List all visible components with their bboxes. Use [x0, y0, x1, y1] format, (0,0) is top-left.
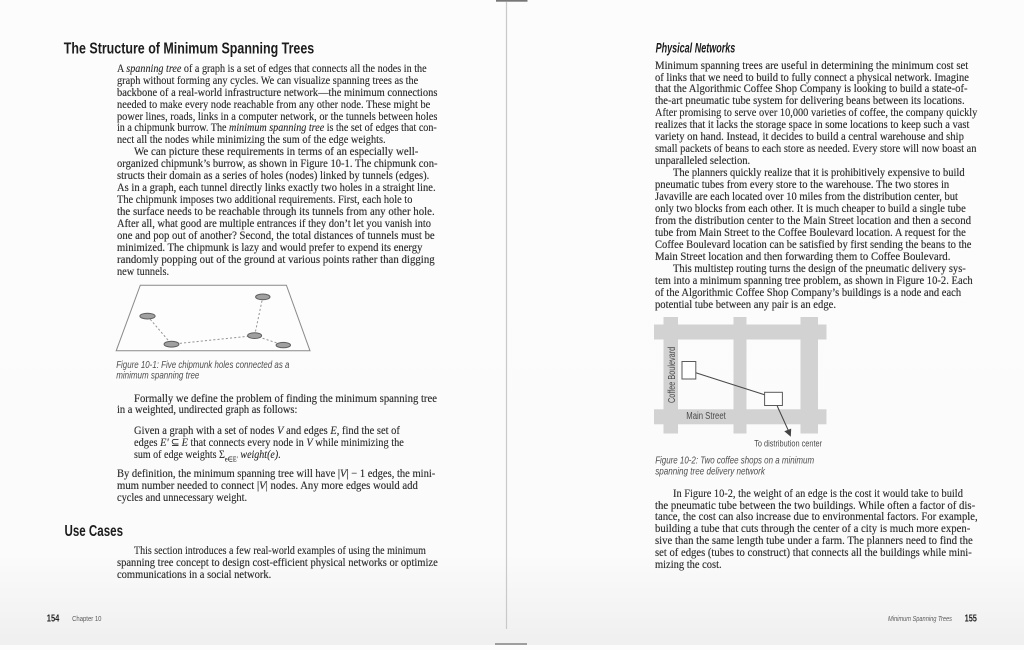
svg-text:154: 154 [47, 614, 60, 625]
svg-text:Coffee Boulevard: Coffee Boulevard [667, 347, 678, 403]
svg-text:To distribution center: To distribution center [754, 438, 822, 448]
svg-text:The Structure of Minimum Spann: The Structure of Minimum Spanning Trees [64, 41, 314, 58]
svg-text:Use Cases: Use Cases [65, 523, 124, 540]
svg-text:Physical Networks: Physical Networks [656, 41, 736, 56]
svg-text:spanning tree delivery network: spanning tree delivery network [655, 467, 766, 478]
svg-text:Chapter 10: Chapter 10 [72, 616, 101, 623]
svg-text:Figure 10-1: Five chipmunk hol: Figure 10-1: Five chipmunk holes connect… [116, 360, 290, 371]
svg-text:155: 155 [965, 614, 978, 625]
svg-text:Figure 10-2: Two coffee shops: Figure 10-2: Two coffee shops on a minim… [655, 455, 814, 466]
svg-text:Minimum Spanning Trees: Minimum Spanning Trees [888, 616, 952, 623]
svg-text:minimum spanning tree: minimum spanning tree [116, 370, 200, 381]
svg-text:Main Street: Main Street [686, 411, 726, 422]
